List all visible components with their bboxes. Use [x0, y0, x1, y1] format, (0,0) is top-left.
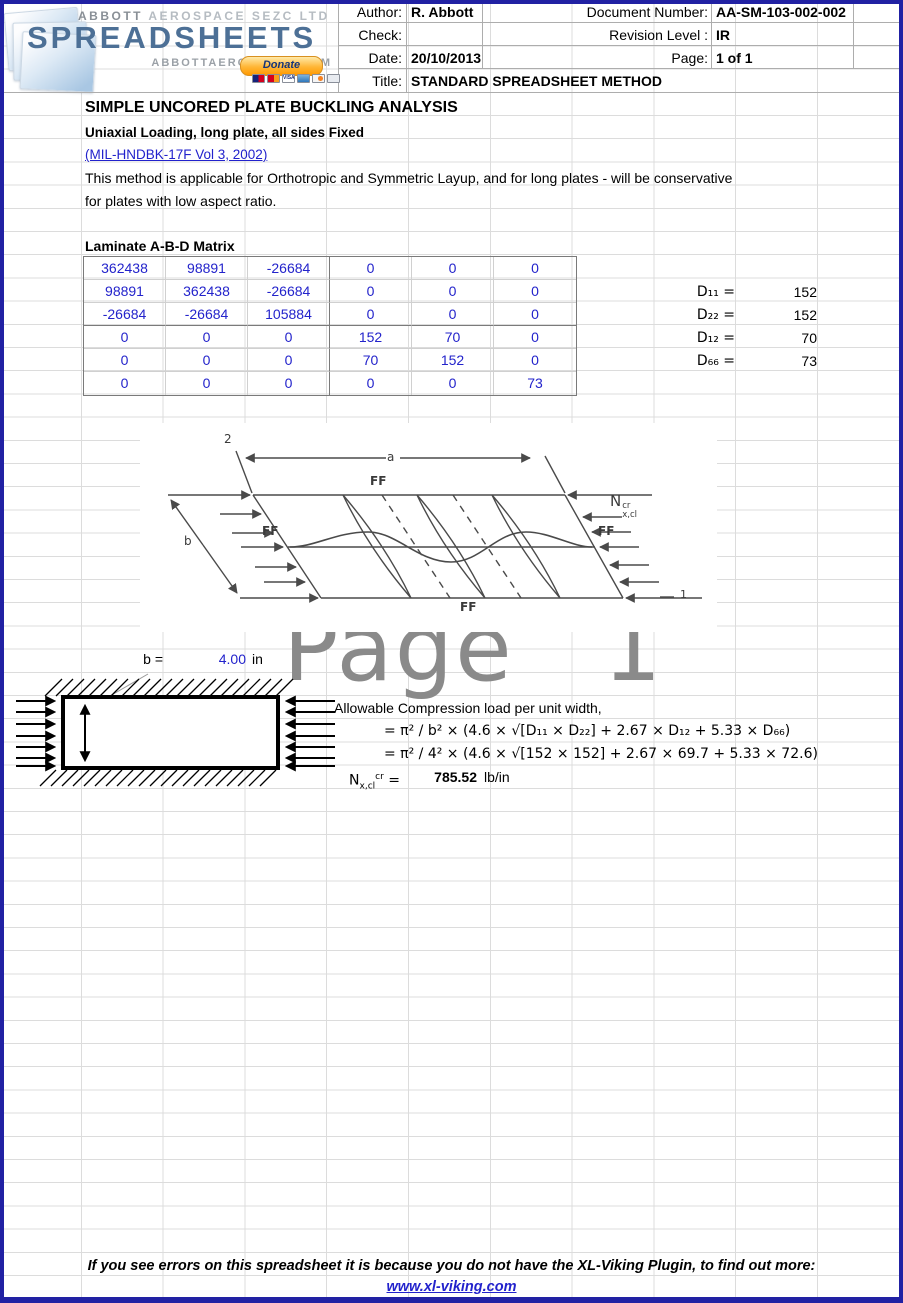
check-label: Check:: [302, 24, 402, 46]
matrix-cell[interactable]: 0: [494, 349, 576, 372]
d22-label: D₂₂ =: [640, 304, 735, 326]
matrix-cell[interactable]: -26684: [84, 303, 166, 326]
dim-a-label: a: [387, 451, 394, 463]
matrix-cell[interactable]: 0: [166, 372, 248, 395]
revision-value[interactable]: IR: [716, 24, 730, 46]
result-n-sup: cr: [375, 772, 384, 782]
matrix-cell[interactable]: 0: [494, 257, 576, 280]
date-label: Date:: [302, 47, 402, 69]
result-equals: =: [384, 773, 400, 789]
page-border-right: [899, 0, 903, 1303]
axis-2-label: 2: [224, 433, 232, 445]
ff-right-label: FF: [598, 525, 614, 537]
matrix-cell[interactable]: 0: [494, 303, 576, 326]
matrix-title: Laminate A-B-D Matrix: [85, 235, 235, 257]
xl-viking-link[interactable]: www.xl-viking.com: [387, 1279, 517, 1295]
matrix-cell[interactable]: -26684: [248, 280, 330, 303]
matrix-cell[interactable]: 0: [330, 372, 412, 395]
description-line-2: for plates with low aspect ratio.: [85, 190, 276, 212]
matrix-cell[interactable]: 0: [248, 372, 330, 395]
calc-intro: Allowable Compression load per unit widt…: [334, 697, 602, 719]
doc-number-label: Document Number:: [460, 1, 708, 23]
matrix-cell[interactable]: 98891: [84, 280, 166, 303]
doc-subtitle: Uniaxial Loading, long plate, all sides …: [85, 122, 364, 144]
result-label: Nx,clcr =: [318, 766, 400, 788]
d12-value: 70: [741, 327, 817, 349]
d11-value: 152: [741, 281, 817, 303]
matrix-cell[interactable]: 0: [166, 349, 248, 372]
title-value[interactable]: STANDARD SPREADSHEET METHOD: [411, 70, 662, 92]
matrix-cell[interactable]: 0: [248, 349, 330, 372]
matrix-cell[interactable]: 0: [84, 372, 166, 395]
abd-matrix-table: 362438 98891 -26684 0 0 0 98891 362438 -…: [83, 256, 577, 396]
spreadsheet-page: Page 1 ABBOTT AEROSPACE SEZC LTD SPREADS…: [0, 0, 903, 1303]
mastercard-icon: [252, 74, 265, 83]
buckling-mode-figure: 2 a b FF FF FF FF 1 Ncrx,cl: [140, 423, 717, 632]
matrix-cell[interactable]: 70: [330, 349, 412, 372]
page-border-bottom: [0, 1297, 903, 1303]
revision-label: Revision Level :: [460, 24, 708, 46]
matrix-cell[interactable]: 0: [412, 372, 494, 395]
footer-link-row: www.xl-viking.com: [0, 1277, 903, 1297]
date-value[interactable]: 20/10/2013: [411, 47, 481, 69]
doc-title: SIMPLE UNCORED PLATE BUCKLING ANALYSIS: [85, 99, 458, 117]
author-label: Author:: [302, 1, 402, 23]
d22-value: 152: [741, 304, 817, 326]
visa-icon: VISA: [282, 74, 295, 83]
matrix-cell[interactable]: 152: [412, 349, 494, 372]
matrix-cell[interactable]: 0: [166, 326, 248, 349]
matrix-cell[interactable]: 0: [84, 326, 166, 349]
matrix-cell[interactable]: 0: [494, 280, 576, 303]
result-unit: lb/in: [484, 766, 510, 788]
plate-sketch-drawing: [10, 640, 350, 800]
load-n-base: N: [610, 492, 621, 510]
result-value: 785.52: [403, 766, 477, 788]
axis-1-label: 1: [680, 589, 687, 601]
footer-notice: If you see errors on this spreadsheet it…: [0, 1255, 903, 1277]
matrix-cell[interactable]: 362438: [166, 280, 248, 303]
matrix-cell[interactable]: 0: [330, 303, 412, 326]
doc-number-value[interactable]: AA-SM-103-002-002: [716, 1, 846, 23]
page-label: Page:: [560, 47, 708, 69]
d12-label: D₁₂ =: [640, 327, 735, 349]
matrix-cell[interactable]: 0: [412, 280, 494, 303]
matrix-cell[interactable]: 0: [248, 326, 330, 349]
matrix-cell[interactable]: 0: [412, 257, 494, 280]
reference-link[interactable]: (MIL-HNDBK-17F Vol 3, 2002): [85, 144, 267, 166]
description-line-1: This method is applicable for Orthotropi…: [85, 167, 732, 189]
matrix-cell[interactable]: 98891: [166, 257, 248, 280]
page-value: 1 of 1: [716, 47, 753, 69]
page-border-top: [0, 0, 903, 4]
logo-spreadsheets-text: SPREADSHEETS: [27, 20, 316, 56]
result-n-base: N: [349, 773, 359, 789]
result-n-sub: x,cl: [360, 781, 376, 791]
matrix-cell[interactable]: 362438: [84, 257, 166, 280]
buckling-figure-drawing: [140, 423, 717, 632]
load-n-sub: x,cl: [622, 511, 637, 520]
matrix-cell[interactable]: 0: [84, 349, 166, 372]
load-nxcr-label: Ncrx,cl: [610, 495, 637, 519]
ff-bottom-label: FF: [460, 601, 476, 613]
calc-formula-symbolic: = π² / b² × (4.6 × √[D₁₁ × D₂₂] + 2.67 ×…: [384, 720, 790, 742]
matrix-cell[interactable]: 105884: [248, 303, 330, 326]
matrix-cell[interactable]: 0: [412, 303, 494, 326]
title-label: Title:: [302, 70, 402, 92]
matrix-cell[interactable]: 73: [494, 372, 576, 395]
plate-sketch: [10, 640, 350, 800]
matrix-cell[interactable]: -26684: [248, 257, 330, 280]
calc-formula-numeric: = π² / 4² × (4.6 × √[152 × 152] + 2.67 ×…: [384, 743, 818, 765]
matrix-cell[interactable]: 152: [330, 326, 412, 349]
matrix-cell[interactable]: 0: [494, 326, 576, 349]
credit-card-icon: [267, 74, 280, 83]
d66-label: D₆₆ =: [640, 350, 735, 372]
page-border-left: [0, 0, 4, 1303]
matrix-cell[interactable]: -26684: [166, 303, 248, 326]
d11-label: D₁₁ =: [640, 281, 735, 303]
ff-top-label: FF: [370, 475, 386, 487]
matrix-cell[interactable]: 0: [330, 257, 412, 280]
matrix-cell[interactable]: 0: [330, 280, 412, 303]
d66-value: 73: [741, 350, 817, 372]
dim-b-label: b: [184, 535, 192, 547]
ff-left-label: FF: [262, 525, 278, 537]
matrix-cell[interactable]: 70: [412, 326, 494, 349]
